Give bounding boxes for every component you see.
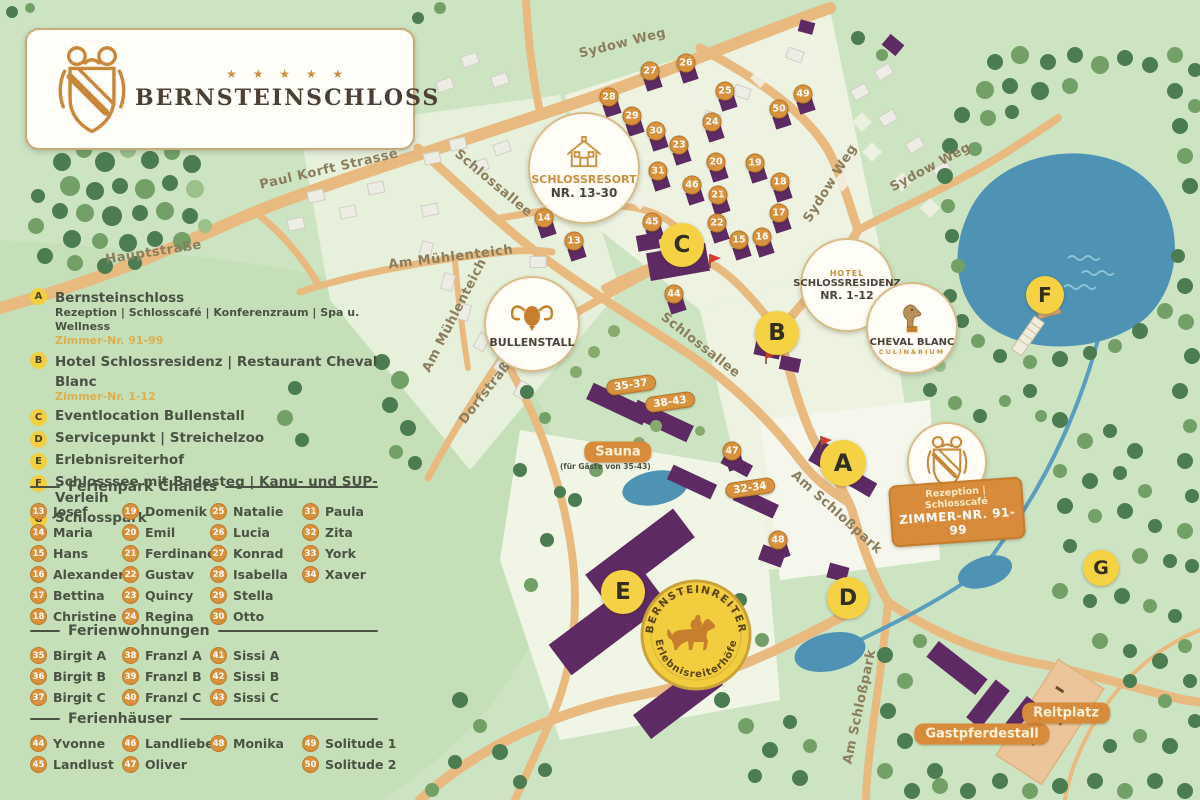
list-item: 36Birgit B bbox=[30, 666, 122, 687]
badge-title: SCHLOSSRESIDENZ bbox=[793, 278, 901, 289]
bullenstall-badge: BULLENSTALL bbox=[484, 276, 580, 372]
list-item: 46Landliebe bbox=[122, 733, 210, 754]
badge-title: SCHLOSSRESORT bbox=[531, 173, 636, 186]
list-item: 48Monika bbox=[210, 733, 302, 754]
chalet-house-icon bbox=[564, 136, 604, 170]
list-item: 45Landlust bbox=[30, 754, 122, 775]
list-item: 35Birgit A bbox=[30, 645, 122, 666]
map-marker-26: 26 bbox=[677, 54, 696, 73]
badge-subtitle: NR. 13-30 bbox=[551, 186, 618, 200]
map-marker-14: 14 bbox=[535, 209, 554, 228]
map-marker-21: 21 bbox=[709, 186, 728, 205]
list-item: 15Hans bbox=[30, 543, 122, 564]
legend-item-a: A Bernsteinschloss Rezeption | Schlossca… bbox=[30, 287, 380, 347]
list-item: 40Franzl C bbox=[122, 687, 210, 708]
gastpferdestall-label: Gastpferdestall bbox=[914, 724, 1049, 745]
list-item: 42Sissi B bbox=[210, 666, 302, 687]
legend-letter-badge: A bbox=[30, 288, 47, 305]
list-item: 32Zita bbox=[302, 522, 378, 543]
map-marker-25: 25 bbox=[716, 82, 735, 101]
map-marker-22: 22 bbox=[708, 214, 727, 233]
section-title: Ferienhäuser bbox=[68, 711, 172, 727]
five-stars: ★ ★ ★ ★ ★ bbox=[135, 67, 440, 81]
badge-subtitle: NR. 1-12 bbox=[820, 289, 873, 302]
list-item: 23Quincy bbox=[122, 585, 210, 606]
list-item: 41Sissi A bbox=[210, 645, 302, 666]
legend-letter-badge: C bbox=[30, 409, 47, 426]
badge-title: CHEVAL BLANC bbox=[870, 337, 955, 348]
list-item: 19Domenik bbox=[122, 501, 210, 522]
reitplatz-label: Reitplatz bbox=[1022, 703, 1110, 724]
map-marker-16: 16 bbox=[753, 228, 772, 247]
list-item: 34Xaver bbox=[302, 564, 378, 585]
schlossresort-badge: SCHLOSSRESORT NR. 13-30 bbox=[528, 112, 640, 224]
legend-item-d: D Servicepunkt | Streichelzoo bbox=[30, 430, 380, 448]
map-letter-g: G bbox=[1083, 550, 1119, 586]
badge-title: BULLENSTALL bbox=[489, 336, 574, 349]
map-marker-31: 31 bbox=[649, 162, 668, 181]
list-item: 47Oliver bbox=[122, 754, 210, 775]
map-letter-c: C bbox=[660, 223, 704, 267]
legend-item-b: B Hotel Schlossresidenz | Restaurant Che… bbox=[30, 351, 380, 403]
crest-icon bbox=[49, 41, 135, 137]
badge-subtitle: CULINARIUM bbox=[879, 348, 945, 356]
list-item: 33York bbox=[302, 543, 378, 564]
map-marker-27: 27 bbox=[641, 62, 660, 81]
list-item: 37Birgit C bbox=[30, 687, 122, 708]
map-marker-23: 23 bbox=[670, 136, 689, 155]
map-marker-17: 17 bbox=[770, 204, 789, 223]
legend-text: Eventlocation Bullenstall bbox=[55, 408, 245, 424]
map-marker-24: 24 bbox=[703, 113, 722, 132]
map-marker-49: 49 bbox=[794, 85, 813, 104]
map-letter-a: A bbox=[820, 440, 866, 486]
map-marker-44: 44 bbox=[665, 285, 684, 304]
legend-text: Bernsteinschloss bbox=[55, 290, 184, 306]
sauna-note: (für Gäste von 35-43) bbox=[560, 462, 651, 471]
map-letter-f: F bbox=[1026, 276, 1064, 314]
map-marker-19: 19 bbox=[746, 154, 765, 173]
bernsteinreiter-badge: BERNSTEINREITER Erlebnisreiterhöfe bbox=[638, 577, 754, 693]
list-item: 20Emil bbox=[122, 522, 210, 543]
list-item: 13Josef bbox=[30, 501, 122, 522]
sauna-label: Sauna bbox=[584, 442, 651, 463]
map-marker-18: 18 bbox=[771, 173, 790, 192]
list-item: 26Lucia bbox=[210, 522, 302, 543]
map-marker-15: 15 bbox=[730, 231, 749, 250]
list-item: 29Stella bbox=[210, 585, 302, 606]
legend-text: Erlebnisreiterhof bbox=[55, 452, 184, 468]
list-item: 27Konrad bbox=[210, 543, 302, 564]
rezeption-label: Rezeption | Schlosscafé ZIMMER-NR. 91-99 bbox=[888, 476, 1026, 547]
badge-eyebrow: HOTEL bbox=[830, 269, 865, 278]
map-marker-28: 28 bbox=[600, 88, 619, 107]
list-item: 39Franzl B bbox=[122, 666, 210, 687]
list-item: 50Solitude 2 bbox=[302, 754, 378, 775]
map-marker-50: 50 bbox=[770, 100, 789, 119]
map-letter-d: D bbox=[827, 577, 869, 619]
map-marker-48: 48 bbox=[769, 531, 788, 550]
list-item: 28Isabella bbox=[210, 564, 302, 585]
list-item: 17Bettina bbox=[30, 585, 122, 606]
legend-text: Servicepunkt | Streichelzoo bbox=[55, 430, 264, 446]
horse-head-icon bbox=[895, 301, 929, 335]
section-chalets: Ferienpark Chalets 13Josef 14Maria 15Han… bbox=[30, 478, 378, 627]
bull-skull-icon bbox=[511, 300, 553, 332]
cheval-blanc-badge: CHEVAL BLANC CULINARIUM bbox=[866, 282, 958, 374]
section-wohnungen: Ferienwohnungen 35Birgit A 36Birgit B 37… bbox=[30, 622, 378, 708]
list-item: 44Yvonne bbox=[30, 733, 122, 754]
map-marker-20: 20 bbox=[707, 153, 726, 172]
map-letter-e: E bbox=[601, 570, 645, 614]
map-marker-13: 13 bbox=[565, 232, 584, 251]
legend-subtext: Rezeption | Schlosscafé | Konferenzraum … bbox=[55, 306, 380, 334]
section-title: Ferienwohnungen bbox=[68, 623, 210, 639]
resort-logo: ★ ★ ★ ★ ★ BERNSTEINSCHLOSS bbox=[25, 28, 415, 150]
list-item: 21Ferdinand bbox=[122, 543, 210, 564]
legend-text: Hotel Schlossresidenz | Restaurant Cheva… bbox=[55, 354, 377, 389]
legend-rooms: Zimmer-Nr. 1-12 bbox=[55, 390, 380, 404]
map-marker-46: 46 bbox=[683, 176, 702, 195]
legend-letter-badge: B bbox=[30, 352, 47, 369]
legend-item-c: C Eventlocation Bullenstall bbox=[30, 408, 380, 426]
legend-item-e: E Erlebnisreiterhof bbox=[30, 452, 380, 470]
legend-letter-badge: E bbox=[30, 453, 47, 470]
list-item: 25Natalie bbox=[210, 501, 302, 522]
resort-map-page: ★ ★ ★ ★ ★ BERNSTEINSCHLOSS A Bernsteinsc… bbox=[0, 0, 1200, 800]
section-title: Ferienpark Chalets bbox=[68, 479, 217, 495]
map-marker-30: 30 bbox=[647, 122, 666, 141]
list-item: 16Alexander bbox=[30, 564, 122, 585]
list-item: 49Solitude 1 bbox=[302, 733, 378, 754]
resort-title: BERNSTEINSCHLOSS bbox=[135, 85, 440, 111]
list-item: 38Franzl A bbox=[122, 645, 210, 666]
legend-letter-badge: D bbox=[30, 431, 47, 448]
list-item: 31Paula bbox=[302, 501, 378, 522]
legend-rooms: Zimmer-Nr. 91-99 bbox=[55, 334, 380, 348]
map-marker-47: 47 bbox=[723, 442, 742, 461]
map-marker-29: 29 bbox=[623, 107, 642, 126]
list-item: 43Sissi C bbox=[210, 687, 302, 708]
list-item: 14Maria bbox=[30, 522, 122, 543]
section-haeuser: Ferienhäuser 44Yvonne 45Landlust 46Landl… bbox=[30, 710, 378, 775]
map-letter-b: B bbox=[755, 311, 799, 355]
map-marker-45: 45 bbox=[643, 213, 662, 232]
list-item: 22Gustav bbox=[122, 564, 210, 585]
